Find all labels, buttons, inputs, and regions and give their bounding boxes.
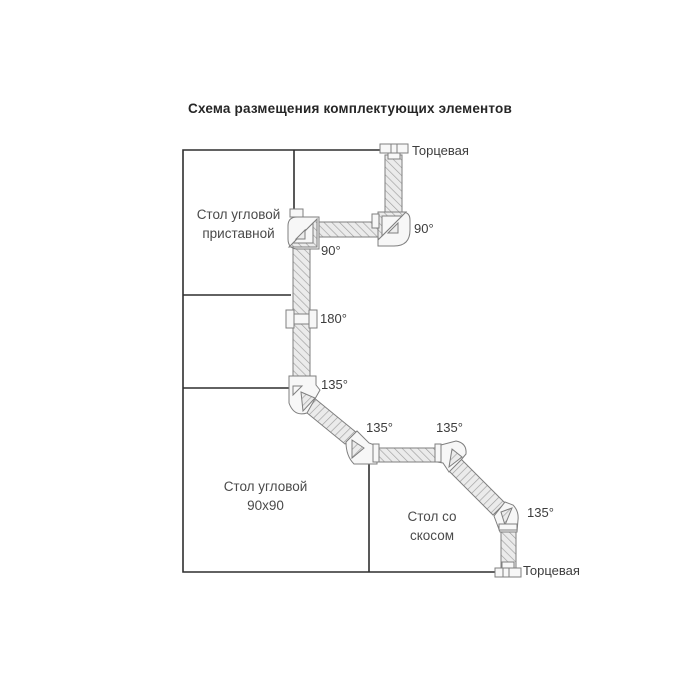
end-cap-top [380,144,408,159]
label-line: 90х90 [193,496,338,515]
label-angle-135-2: 135° [366,421,393,435]
strip-vertical-middle [293,245,310,378]
end-cap-bottom [495,562,521,577]
corner-90-right [372,212,410,246]
diagram-page: Схема размещения комплектующих элементов [0,0,700,700]
label-angle-90-right: 90° [414,222,434,236]
strip-vertical-top [385,155,402,217]
strip-horizontal-bottom [372,448,440,462]
label-line: Стол угловой [166,205,311,224]
label-angle-180: 180° [320,312,347,326]
label-angle-135-4: 135° [527,506,554,520]
label-line: Стол со [371,507,493,526]
label-line: Стол угловой [193,477,338,496]
label-angle-135-3: 135° [436,421,463,435]
layout-diagram [0,0,700,700]
label-corner-attached-table: Стол угловой приставной [166,205,311,243]
label-corner-table-90x90: Стол угловой 90х90 [193,477,338,515]
label-angle-135-1: 135° [321,378,348,392]
label-end-piece-bottom: Торцевая [523,564,580,578]
label-line: приставной [166,224,311,243]
label-line: скосом [371,526,493,545]
label-end-piece-top: Торцевая [412,144,469,158]
label-beveled-table: Стол со скосом [371,507,493,545]
label-angle-90-left: 90° [321,244,341,258]
